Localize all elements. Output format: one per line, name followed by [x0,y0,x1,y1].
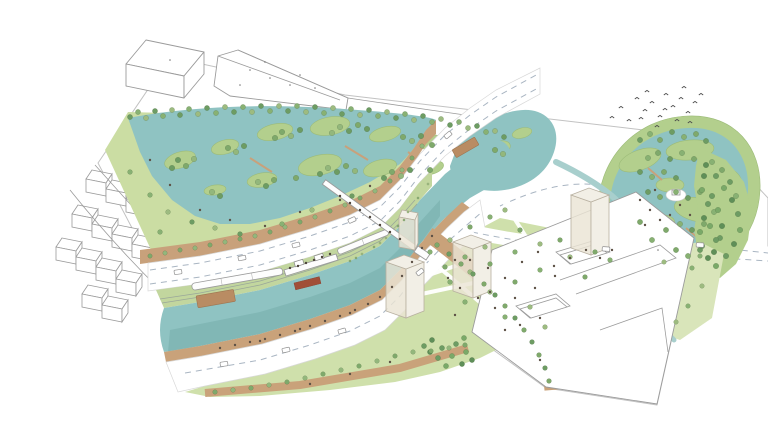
tree-mark [321,110,326,115]
tree-mark [175,157,181,163]
tree-mark [463,300,468,305]
tree-mark [637,169,642,174]
tree-mark [456,119,461,124]
dot-mark [309,325,311,327]
tree-mark [373,189,377,193]
tree-mark [421,343,426,348]
bird-mark [650,101,654,103]
tree-mark [662,260,667,265]
tree-mark [297,127,303,133]
tree-mark [312,104,317,109]
dot-mark [391,286,393,288]
tree-mark [429,349,434,354]
tree-mark [355,122,361,128]
dot-mark [324,320,326,322]
dot-mark [454,314,456,316]
tree-mark [699,187,705,193]
dot-mark [469,259,471,261]
tree-mark [537,353,542,358]
tree-mark [285,380,290,385]
bridge-tower-front [399,217,415,250]
tree-mark [191,156,197,162]
tree-mark [655,150,660,155]
tree-mark [233,149,239,155]
tree-mark [397,225,399,227]
bird-mark [679,97,683,99]
tree-mark [238,232,243,237]
dot-mark [169,184,171,186]
tree-mark [186,106,191,111]
tree-mark [343,203,347,207]
dot-mark [369,185,371,187]
dot-mark [669,214,671,216]
dot-mark [349,202,351,204]
tree-mark [429,142,435,148]
wedge-building [214,50,348,110]
tree-mark [543,366,548,371]
tree-mark [447,252,452,257]
dot-mark [299,328,301,330]
dot-mark [539,317,541,319]
dot-mark [411,261,413,263]
tree-mark [685,195,690,200]
tree-mark [358,196,362,200]
bird-mark [645,90,649,92]
tree-mark [538,242,543,247]
tree-mark [152,108,157,113]
tree-mark [222,104,227,109]
tree-mark [403,219,405,221]
tree-mark [357,112,362,117]
tree-mark [294,103,299,108]
tree-mark [213,226,218,231]
tree-mark [461,335,466,340]
tree-mark [389,169,395,175]
bridge-tower-side [415,213,418,250]
dot-mark [259,340,261,342]
tree-mark [317,171,323,177]
tree-mark [366,107,371,112]
dot-mark [299,211,301,213]
dot-mark [239,84,241,86]
tree-mark [543,325,548,330]
tree-mark [400,168,404,172]
dot-mark [421,247,423,249]
tree-mark [661,169,666,174]
tree-mark [190,220,195,225]
tree-mark [407,167,413,173]
tree-mark [689,227,694,232]
tree-mark [483,129,488,134]
tower-3 [571,188,609,255]
dot-mark [264,225,266,227]
dot-mark [554,275,556,277]
tree-mark [703,162,709,168]
dot-mark [349,312,351,314]
tree-mark [731,241,737,247]
dot-mark [539,359,541,361]
tree-mark [547,379,552,384]
tree-mark [379,242,381,244]
tree-mark [701,173,707,179]
tree-mark [349,260,351,262]
dot-mark [599,257,601,259]
tree-mark [337,124,343,130]
tree-mark [420,144,424,148]
tree-mark [645,189,650,194]
tree-mark [492,147,498,153]
tree-mark [238,237,242,241]
tree-mark [148,254,152,258]
dot-mark [309,383,311,385]
tree-mark [375,359,380,364]
tree-mark [703,138,708,143]
tree-mark [213,390,218,395]
bird-mark [639,117,643,119]
dot-mark [504,329,506,331]
tree-mark [673,175,678,180]
dot-mark [514,297,516,299]
tree-mark [160,113,165,118]
bird-mark [627,119,631,121]
tree-mark [709,193,715,199]
dot-mark [494,307,496,309]
tree-mark [673,247,678,252]
bird-mark [610,116,614,118]
tree-mark [447,122,452,127]
tree-mark [435,243,440,248]
dot-mark [654,189,656,191]
tree-mark [258,103,263,108]
tree-mark [513,316,518,321]
tree-mark [503,208,508,213]
bird-mark [686,111,690,113]
tree-mark [346,128,352,134]
tree-mark [208,243,212,247]
tree-mark [240,104,245,109]
tree-mark [482,282,487,287]
tree-mark [417,197,419,199]
tree-mark [381,175,387,181]
tree-mark [669,129,674,134]
tree-mark [469,357,474,362]
tree-mark [488,215,493,220]
tree-mark [711,249,717,255]
tree-mark [288,133,294,139]
tree-mark [127,114,132,119]
dot-mark [297,265,299,267]
tree-mark [357,364,362,369]
car-mark [696,243,704,248]
dot-mark [264,338,266,340]
tree-mark [364,126,370,132]
dot-mark [149,159,151,161]
tree-mark [723,253,729,259]
dot-mark [489,291,491,293]
tree-mark [313,215,317,219]
tree-mark [649,174,654,179]
tree-mark [279,129,285,135]
tree-mark [303,109,308,114]
tree-mark [673,189,678,194]
bird-mark [635,97,639,99]
dot-mark [431,235,433,237]
dot-mark [521,261,523,263]
tree-mark [707,223,713,229]
dot-mark [314,87,316,89]
dot-mark [169,59,171,61]
dot-mark [389,361,391,363]
tree-mark [339,111,344,116]
tree-mark [255,179,261,185]
car-mark [220,361,228,366]
dot-mark [264,61,266,63]
tree-mark [427,167,433,173]
dot-mark [379,296,381,298]
tree-mark [663,227,668,232]
tree-mark [727,179,732,184]
tree-mark [447,346,452,351]
tree-mark [225,145,231,151]
tree-mark [705,255,711,261]
tree-mark [267,383,272,388]
prism-mark [102,296,128,322]
dot-mark [504,277,506,279]
axonometric-site-plan [0,0,768,445]
dot-mark [294,330,296,332]
tree-mark [361,253,363,255]
tree-mark [713,173,719,179]
bird-mark [699,93,703,95]
tree-mark [231,109,236,114]
tree-mark [513,280,518,285]
tree-mark [483,245,488,250]
tree-mark [193,246,197,250]
dot-mark [679,204,681,206]
tree-mark [158,230,163,235]
dot-mark [477,297,479,299]
bird-mark [664,93,668,95]
tree-mark [209,189,215,195]
dot-mark [369,216,371,218]
dot-mark [249,69,251,71]
tree-mark [231,388,236,393]
tree-mark [448,238,453,243]
tree-mark [729,197,735,203]
tree-mark [701,215,707,221]
tree-mark [518,228,523,233]
tree-mark [647,131,652,136]
tree-mark [500,151,506,157]
tree-mark [493,293,498,298]
tree-mark [435,355,440,360]
tree-mark [677,221,682,226]
tree-mark [713,263,719,269]
tree-mark [657,137,662,142]
dot-mark [321,256,323,258]
tree-mark [713,237,719,243]
tree-mark [253,234,257,238]
tree-mark [698,254,703,259]
tree-mark [701,221,706,226]
tree-mark [169,107,174,112]
tree-mark [411,117,416,122]
dot-mark [399,238,401,240]
tree-mark [249,386,254,391]
tree-mark [721,185,727,191]
tree-mark [583,275,588,280]
tree-mark [355,257,357,259]
tree-mark [418,133,424,139]
tree-mark [428,250,433,255]
dot-mark [459,287,461,289]
dot-mark [644,224,646,226]
dot-mark [659,219,661,221]
dot-mark [447,277,449,279]
dot-mark [534,287,536,289]
tree-mark [204,105,209,110]
dot-mark [379,224,381,226]
tree-mark [263,183,269,189]
dot-mark [229,219,231,221]
tree-mark [427,183,429,185]
tree-mark [373,246,375,248]
tree-mark [276,103,281,108]
dot-mark [359,209,361,211]
tree-mark [398,173,404,179]
bird-mark [643,109,647,111]
tree-mark [709,159,714,164]
tree-mark [439,345,444,350]
tree-mark [697,229,703,235]
dot-mark [569,257,571,259]
tree-mark [329,130,335,136]
tree-mark [249,109,254,114]
tree-mark [178,248,182,252]
tree-mark [298,220,302,224]
tree-mark [637,137,642,142]
tree-mark [402,111,407,116]
tree-mark [166,210,171,215]
tree-mark [530,340,535,345]
tree-mark [272,135,278,141]
tree-mark [737,227,743,233]
tree-mark [463,255,468,260]
tree-mark [503,315,508,320]
tree-mark [667,156,672,161]
bird-mark [693,101,697,103]
tree-mark [325,165,331,171]
tree-mark [679,150,684,155]
dot-mark [289,84,291,86]
tree-mark [448,280,453,285]
tree-mark [411,350,416,355]
tree-mark [674,320,679,325]
dot-mark [401,275,403,277]
tree-mark [213,110,218,115]
tree-mark [143,115,148,120]
tree-mark [719,167,724,172]
dot-mark [249,341,251,343]
tree-mark [538,268,543,273]
tree-mark [693,131,698,136]
tree-mark [690,266,695,271]
dot-mark [339,195,341,197]
dot-mark [339,199,341,201]
bird-mark [663,108,667,110]
tree-mark [321,372,326,377]
tree-mark [463,343,468,348]
tree-mark [686,304,691,309]
tree-mark [223,240,227,244]
tree-mark [410,156,414,160]
tree-mark [528,305,533,310]
dot-mark [454,259,456,261]
dot-mark [487,267,489,269]
dot-mark [349,373,351,375]
tree-mark [705,201,711,207]
tree-mark [384,109,389,114]
tree-mark [388,179,392,183]
tree-mark [268,230,272,234]
tree-mark [503,304,508,309]
tree-mark [513,250,518,255]
prism-mark [116,270,142,296]
tree-mark [429,337,434,342]
tree-mark [459,361,464,366]
tree-mark [657,194,662,199]
dot-mark [553,265,555,267]
bird-mark [682,86,686,88]
dot-mark [689,214,691,216]
dot-mark [611,249,613,251]
tree-mark [438,116,443,121]
tree-mark [183,163,189,169]
tree-mark [715,207,721,213]
tree-mark [334,169,340,175]
dot-mark [585,249,587,251]
tree-mark [343,163,349,169]
dot-mark [639,199,641,201]
tree-mark [303,376,308,381]
tree-mark [409,138,415,144]
tree-mark [407,211,409,213]
tree-mark [645,155,650,160]
tree-mark [681,134,686,139]
tree-mark [735,211,741,217]
tree-mark [385,237,387,239]
tree-mark [649,237,654,242]
tree-mark [685,253,690,258]
tree-mark [453,341,458,346]
dot-mark [537,251,539,253]
dot-mark [657,249,659,251]
tree-mark [271,177,277,183]
tree-mark [474,123,479,128]
tree-mark [501,134,506,139]
tree-mark [463,349,468,354]
tree-mark [700,284,705,289]
car-mark [174,269,182,274]
dot-mark [279,334,281,336]
tree-mark [393,115,398,120]
tree-mark [443,363,448,368]
dot-mark [289,267,291,269]
tree-mark [420,113,425,118]
dot-mark [199,209,201,211]
dot-mark [299,74,301,76]
bird-mark [658,115,662,117]
